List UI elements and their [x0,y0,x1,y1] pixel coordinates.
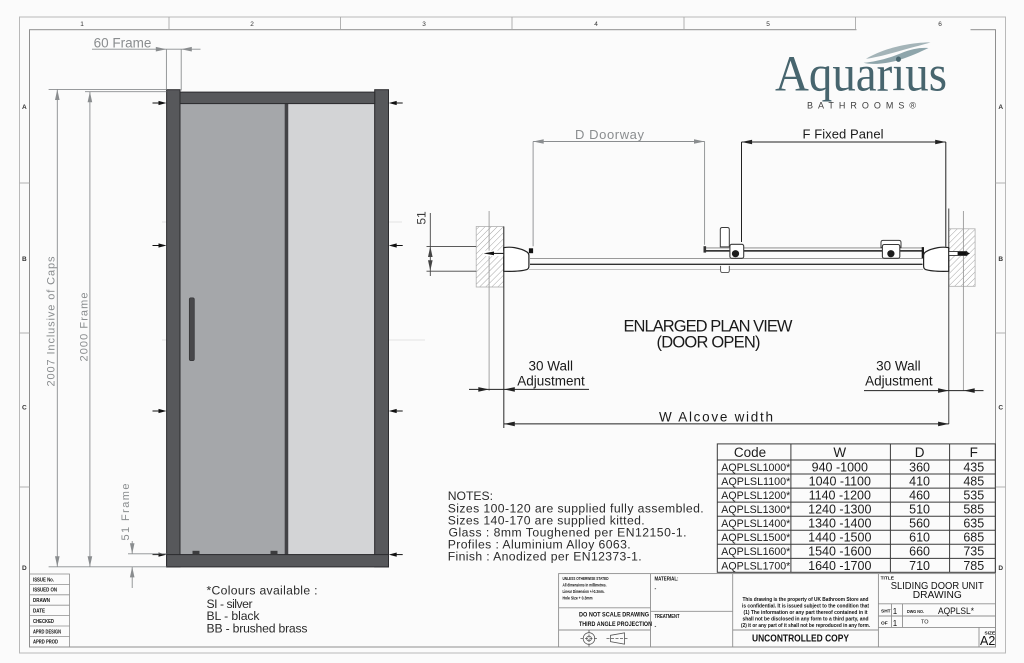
svg-text:-: - [655,624,657,630]
svg-text:Linear Dimension +/-0.3mm.: Linear Dimension +/-0.3mm. [563,589,605,595]
svg-text:A: A [22,104,27,111]
svg-text:BB - brushed brass: BB - brushed brass [207,621,308,635]
svg-text:SHT: SHT [881,609,891,615]
svg-text:735: 735 [963,544,984,558]
svg-text:560: 560 [909,516,930,530]
svg-text:360: 360 [909,460,930,474]
svg-text:1: 1 [893,619,898,628]
svg-text:AQPLSL1200*: AQPLSL1200* [721,490,791,502]
svg-text:DRAWN: DRAWN [33,598,50,604]
svg-text:AQPLSL*: AQPLSL* [938,606,974,617]
svg-text:AQPLSL1300*: AQPLSL1300* [721,504,791,516]
svg-text:(DOOR OPEN): (DOOR OPEN) [657,333,761,351]
svg-text:D Doorway: D Doorway [575,127,645,142]
svg-text:DRAWING: DRAWING [913,589,962,601]
svg-text:1640 -1700: 1640 -1700 [808,559,871,573]
svg-text:W: W [833,445,846,460]
svg-text:UNLESS OTHERWISE STATED: UNLESS OTHERWISE STATED [563,576,609,582]
svg-text:AQPLSL1400*: AQPLSL1400* [721,518,791,530]
svg-text:30 Wall: 30 Wall [876,359,921,374]
svg-text:-: - [655,586,657,592]
svg-text:AQPLSL1000*: AQPLSL1000* [721,462,791,474]
svg-text:ISSUED ON: ISSUED ON [33,588,57,594]
svg-text:685: 685 [963,530,984,544]
svg-text:TREATMENT: TREATMENT [655,614,681,620]
svg-text:535: 535 [963,488,984,502]
svg-text:C: C [998,405,1003,412]
svg-text:940 -1000: 940 -1000 [812,460,868,474]
svg-text:Aquarius: Aquarius [775,47,947,103]
svg-text:(2) it or any part of it shall: (2) it or any part of it shall not be re… [741,623,870,629]
svg-text:1240 -1300: 1240 -1300 [808,502,871,516]
svg-text:D: D [22,565,27,572]
svg-text:A: A [998,104,1003,111]
svg-text:785: 785 [963,559,984,573]
svg-text:ISSUE No.: ISSUE No. [33,577,55,583]
svg-text:1340 -1400: 1340 -1400 [808,516,871,530]
svg-text:All dimensions in millimetres.: All dimensions in millimetres. [563,583,607,589]
svg-text:635: 635 [963,516,984,530]
svg-text:2000 Frame: 2000 Frame [79,293,91,362]
svg-text:1540 -1600: 1540 -1600 [808,544,871,558]
svg-text:THIRD ANGLE PROJECTION: THIRD ANGLE PROJECTION [579,621,652,628]
svg-text:1040 -1100: 1040 -1100 [809,474,871,488]
svg-text:DWG NO.: DWG NO. [907,609,924,615]
svg-text:DATE: DATE [33,609,46,615]
svg-text:D: D [915,445,925,460]
svg-text:Adjustment: Adjustment [865,374,933,389]
svg-text:1: 1 [893,607,898,616]
svg-text:Finish : Anodized per EN12373-: Finish : Anodized per EN12373-1. [448,550,642,564]
svg-text:W Alcove width: W Alcove width [659,409,773,424]
svg-text:C: C [22,405,27,412]
svg-text:660: 660 [909,544,930,558]
svg-text:2: 2 [250,21,254,28]
svg-text:shall not be disclosed in any: shall not be disclosed in any form to a … [743,617,869,623]
svg-text:4: 4 [594,21,598,28]
svg-text:1140 -1200: 1140 -1200 [809,488,871,502]
svg-text:5: 5 [766,21,770,28]
svg-text:435: 435 [963,460,984,474]
svg-text:B: B [998,256,1003,263]
svg-text:1440 -1500: 1440 -1500 [808,530,871,544]
svg-text:APRD PROD: APRD PROD [33,640,58,646]
svg-text:BATHROOMS®: BATHROOMS® [807,100,921,110]
svg-text:3: 3 [422,21,426,28]
svg-text:AQPLSL1600*: AQPLSL1600* [721,546,791,558]
svg-text:DO NOT SCALE DRAWING: DO NOT SCALE DRAWING [579,612,649,619]
svg-text:485: 485 [963,474,984,488]
svg-text:AQPLSL1100*: AQPLSL1100* [721,476,791,488]
svg-text:AQPLSL1700*: AQPLSL1700* [721,561,791,573]
svg-text:UNCONTROLLED COPY: UNCONTROLLED COPY [752,633,849,645]
svg-text:Adjustment: Adjustment [517,374,585,389]
svg-text:MATERIAL:: MATERIAL: [655,577,679,583]
svg-text:60 Frame: 60 Frame [94,36,152,51]
svg-text:A2: A2 [980,634,995,648]
svg-text:30 Wall: 30 Wall [528,359,573,374]
svg-text:2007 Inclusive of Caps: 2007 Inclusive of Caps [46,256,58,387]
svg-text:This drawing is the property o: This drawing is the property of UK Bathr… [743,597,869,603]
svg-text:585: 585 [963,502,984,516]
svg-text:TO: TO [921,620,929,626]
svg-text:Code: Code [734,445,766,460]
svg-text:F: F [970,445,978,460]
svg-text:is confidential. It is issued: is confidential. It is issued subject to… [742,604,869,610]
svg-text:OF: OF [881,621,888,627]
svg-text:6: 6 [938,21,942,28]
svg-text:CHECKED: CHECKED [33,619,54,625]
svg-text:510: 510 [909,502,930,516]
svg-text:D: D [998,565,1003,572]
svg-text:460: 460 [909,488,930,502]
svg-text:(1) The information or any par: (1) The information or any part thereof … [744,610,868,616]
svg-text:*Colours available :: *Colours available : [207,584,318,598]
svg-text:F Fixed Panel: F Fixed Panel [803,126,884,141]
svg-text:1: 1 [80,21,84,28]
svg-text:51 Frame: 51 Frame [120,484,132,541]
svg-text:AQPLSL1500*: AQPLSL1500* [721,532,791,544]
svg-text:B: B [22,256,27,263]
svg-text:Hole Size + 0.3mm: Hole Size + 0.3mm [563,596,593,602]
svg-text:51: 51 [415,211,429,225]
svg-text:APRD DESIGN: APRD DESIGN [33,629,61,635]
svg-text:410: 410 [909,474,930,488]
svg-text:710: 710 [909,559,930,573]
svg-text:610: 610 [909,530,930,544]
